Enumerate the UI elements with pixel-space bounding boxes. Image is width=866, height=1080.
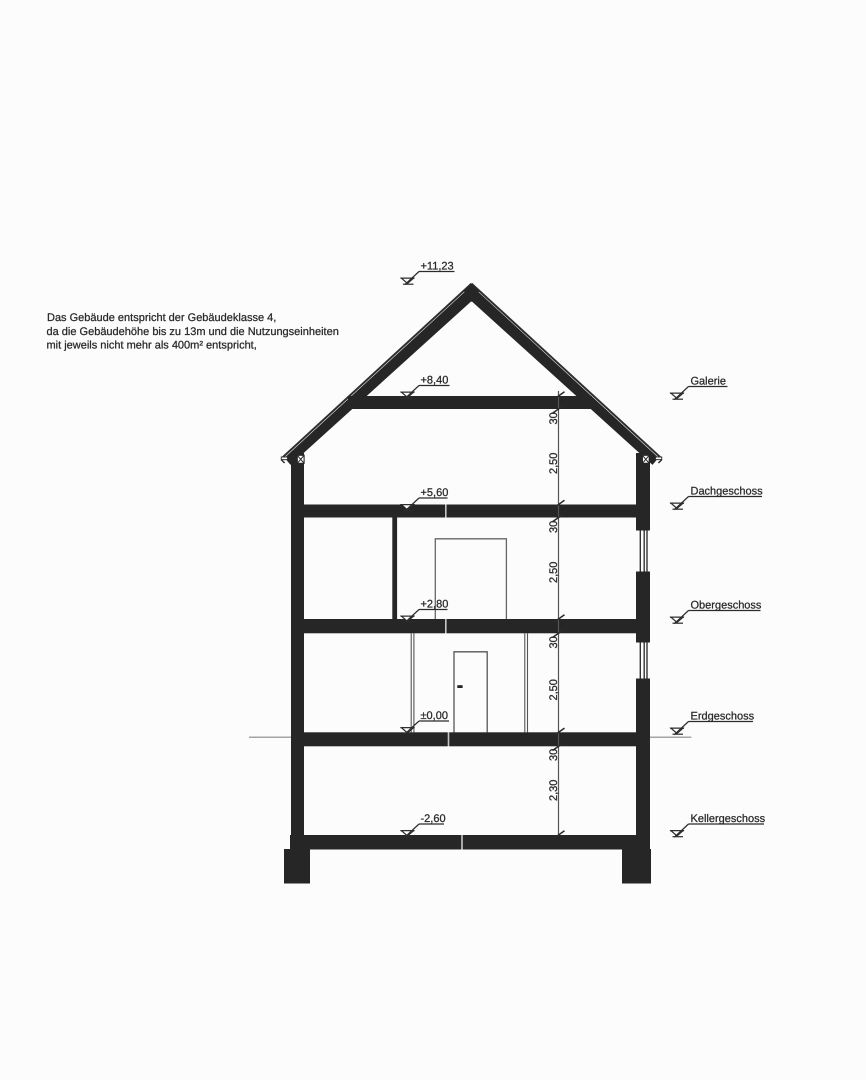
svg-text:30: 30	[548, 749, 560, 761]
svg-text:2,30: 2,30	[548, 780, 560, 801]
svg-text:Dachgeschoss: Dachgeschoss	[691, 486, 764, 498]
svg-text:30: 30	[548, 412, 560, 424]
svg-text:da die Gebäudehöhe bis zu 13m: da die Gebäudehöhe bis zu 13m und die Nu…	[47, 326, 339, 338]
svg-text:Galerie: Galerie	[691, 376, 726, 388]
svg-text:-2,60: -2,60	[421, 813, 446, 825]
svg-text:mit jeweils nicht mehr als 400: mit jeweils nicht mehr als 400m² entspri…	[47, 339, 257, 351]
svg-text:30: 30	[548, 521, 560, 533]
svg-text:±0,00: ±0,00	[421, 710, 448, 722]
svg-text:+11,23: +11,23	[421, 261, 454, 273]
svg-text:2,50: 2,50	[548, 679, 560, 700]
svg-text:30: 30	[548, 636, 560, 648]
svg-text:+8,40: +8,40	[421, 375, 449, 387]
svg-text:+5,60: +5,60	[421, 487, 449, 499]
svg-text:2,50: 2,50	[548, 453, 560, 474]
svg-text:Obergeschoss: Obergeschoss	[691, 600, 762, 612]
svg-text:Das Gebäude entspricht der Geb: Das Gebäude entspricht der Gebäudeklasse…	[47, 312, 276, 324]
svg-text:Erdgeschoss: Erdgeschoss	[691, 711, 755, 723]
svg-text:+2,80: +2,80	[421, 599, 449, 611]
svg-text:Kellergeschoss: Kellergeschoss	[691, 813, 766, 825]
svg-text:2,50: 2,50	[548, 562, 560, 583]
